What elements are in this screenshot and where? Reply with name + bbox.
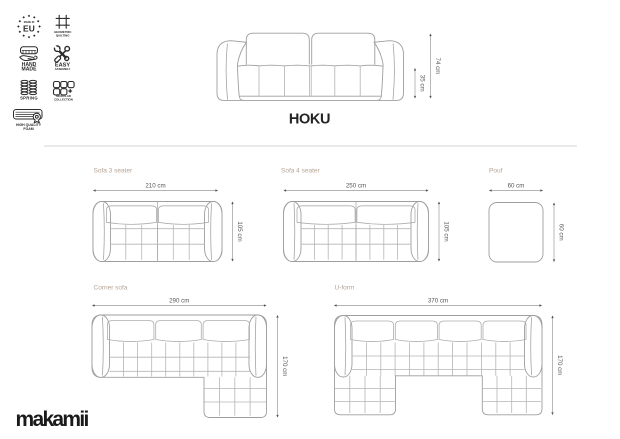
- svg-text:105 cm: 105 cm: [236, 221, 243, 241]
- svg-text:Sofa 3 seater: Sofa 3 seater: [94, 168, 133, 175]
- svg-text:370 cm: 370 cm: [428, 298, 448, 305]
- svg-text:makamii: makamii: [16, 408, 89, 431]
- svg-text:74 cm: 74 cm: [434, 58, 441, 75]
- svg-text:60 cm: 60 cm: [508, 183, 525, 190]
- svg-text:60 cm: 60 cm: [557, 224, 564, 241]
- svg-text:Pouf: Pouf: [489, 168, 503, 175]
- svg-text:35 cm: 35 cm: [418, 75, 425, 92]
- svg-text:Corner sofa: Corner sofa: [94, 285, 128, 292]
- svg-text:U-form: U-form: [335, 285, 355, 292]
- svg-text:250 cm: 250 cm: [346, 183, 366, 190]
- svg-text:MADE: MADE: [22, 67, 38, 73]
- svg-text:ASSEMBLY: ASSEMBLY: [55, 67, 71, 71]
- svg-text:170 cm: 170 cm: [556, 355, 563, 375]
- svg-text:210 cm: 210 cm: [145, 183, 165, 190]
- svg-text:105 cm: 105 cm: [442, 221, 449, 241]
- svg-text:290 cm: 290 cm: [169, 298, 189, 305]
- svg-text:Sofa 4 seater: Sofa 4 seater: [281, 168, 320, 175]
- svg-text:HOKU: HOKU: [289, 112, 330, 128]
- svg-text:EU: EU: [23, 23, 35, 33]
- svg-text:COLLECTION: COLLECTION: [54, 97, 73, 101]
- svg-text:FOAM: FOAM: [23, 127, 33, 131]
- svg-text:QUILTING: QUILTING: [56, 34, 70, 38]
- svg-text:SPRING: SPRING: [20, 96, 38, 101]
- svg-text:170 cm: 170 cm: [281, 356, 288, 376]
